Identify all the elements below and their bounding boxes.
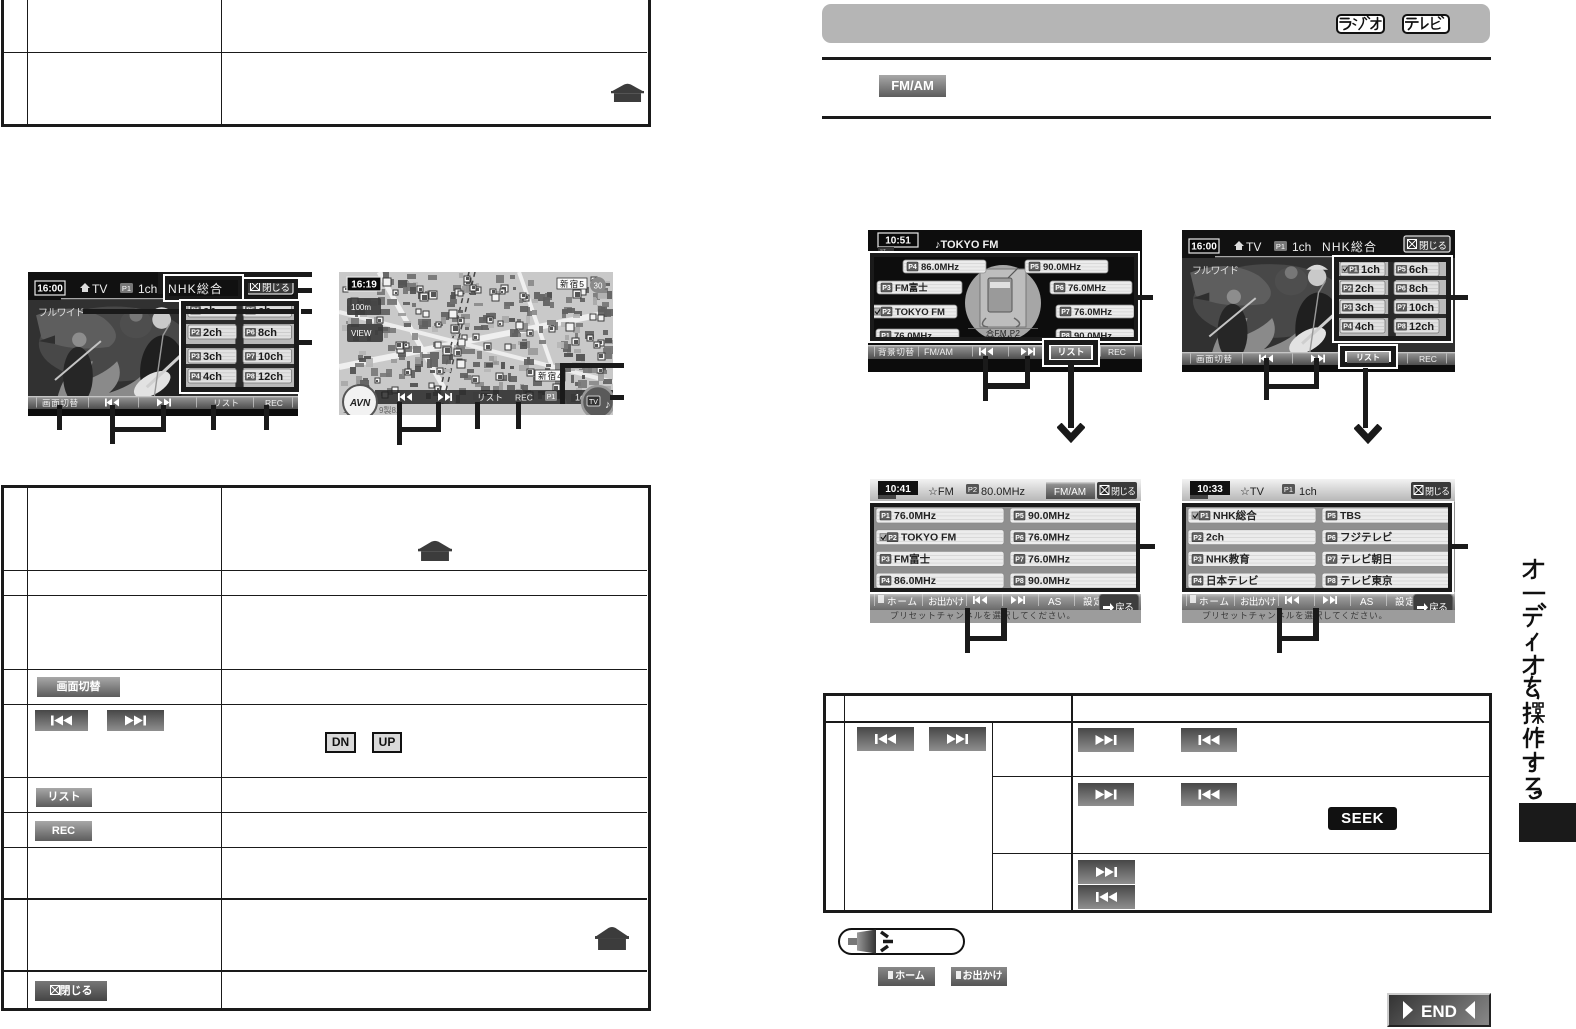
svg-text:END: END [1421,1002,1457,1021]
svg-text:FM/AM: FM/AM [1054,487,1086,498]
svg-text:♪TOKYO FM: ♪TOKYO FM [935,239,998,251]
svg-text:10:33: 10:33 [1197,484,1223,495]
svg-text:お出かけ: お出かけ [1240,596,1276,608]
svg-text:閉じる: 閉じる [1425,487,1450,497]
svg-text:新宿4: 新宿4 [538,371,562,381]
svg-text:30: 30 [594,282,603,291]
svg-text:設定: 設定 [1395,596,1415,608]
svg-text:背景切替: 背景切替 [878,347,914,357]
svg-text:P1: P1 [547,394,556,401]
svg-text:REC: REC [1419,354,1437,364]
svg-text:お出かけ: お出かけ [928,596,964,608]
svg-text:1ch: 1ch [1299,486,1317,498]
svg-text:プリセットチャンネルを選択してください。: プリセットチャンネルを選択してください。 [1202,611,1387,621]
svg-text:TV: TV [589,399,598,406]
svg-text:♪: ♪ [605,399,611,411]
svg-text:10:41: 10:41 [885,484,911,495]
svg-text:TV: TV [1246,240,1261,254]
svg-text:フルワイド: フルワイド [38,308,85,319]
svg-text:P1: P1 [1276,242,1285,251]
svg-text:ホーム: ホーム [887,597,917,608]
svg-text:1ch: 1ch [1292,240,1311,254]
svg-text:1ch: 1ch [138,282,157,296]
svg-text:REC: REC [1108,347,1126,357]
svg-text:16:00: 16:00 [1191,242,1217,253]
svg-text:閉じる: 閉じる [1111,487,1136,497]
svg-text:80.0MHz: 80.0MHz [981,486,1025,498]
svg-text:新宿5: 新宿5 [560,279,584,289]
svg-text:FM/AM: FM/AM [924,347,953,357]
svg-text:閉じる: 閉じる [1419,241,1447,252]
svg-text:10:51: 10:51 [885,236,911,247]
svg-text:AVN: AVN [349,398,371,409]
svg-text:AS: AS [1360,597,1374,608]
svg-text:16:19: 16:19 [351,280,377,291]
svg-text:REC: REC [515,393,533,403]
svg-text:P1: P1 [122,284,131,293]
svg-text:16:00: 16:00 [37,284,63,295]
svg-text:NHK総合: NHK総合 [1322,239,1376,254]
svg-text:VIEW: VIEW [351,329,372,338]
svg-text:☆TV: ☆TV [1240,486,1265,498]
svg-text:リスト: リスト [477,393,503,403]
svg-text:画面切替: 画面切替 [1196,354,1232,364]
svg-text:AS: AS [1048,597,1062,608]
svg-text:TV: TV [92,282,107,296]
svg-text:フルワイド: フルワイド [1192,266,1239,277]
svg-text:P1: P1 [1284,485,1293,494]
svg-text:P2: P2 [968,485,977,494]
svg-text:☆FM: ☆FM [928,486,954,498]
svg-text:プリセットチャンネルを選択してください。: プリセットチャンネルを選択してください。 [890,611,1075,621]
svg-text:リスト: リスト [213,398,239,408]
svg-text:ホーム: ホーム [1199,597,1229,608]
svg-text:100m: 100m [351,303,371,312]
